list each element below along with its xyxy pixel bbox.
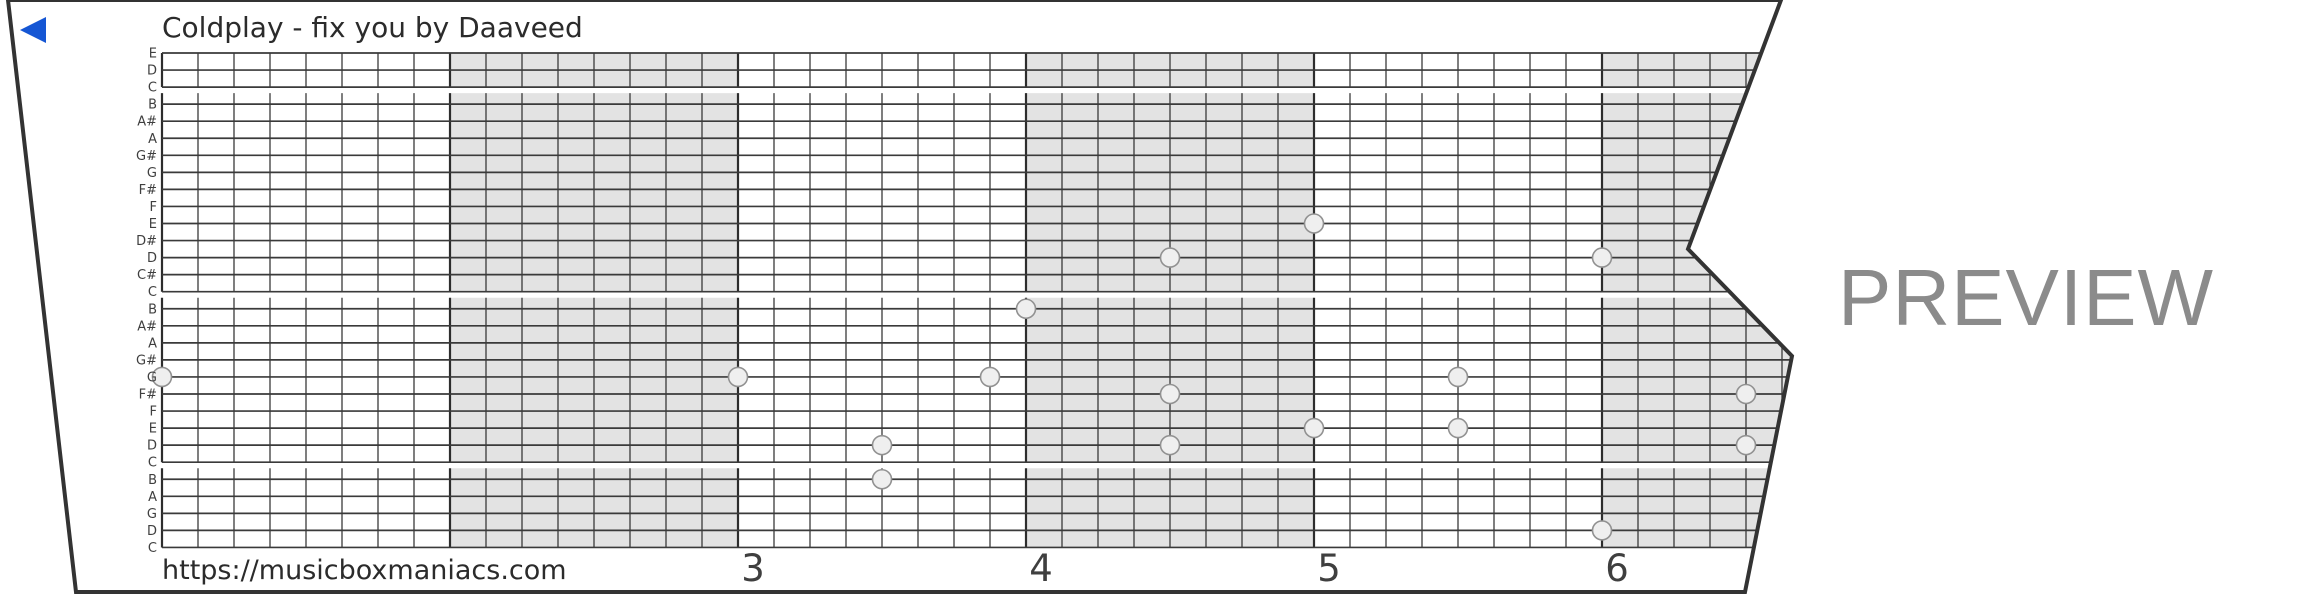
note-dot [873, 436, 892, 455]
note-dot [1161, 248, 1180, 267]
note-label: B [148, 473, 157, 488]
note-label: F# [139, 388, 157, 403]
note-label: F [150, 405, 157, 420]
note-label: A# [137, 115, 157, 130]
note-dot [1449, 367, 1468, 386]
measure-number: 3 [741, 547, 765, 590]
note-label: G [147, 370, 157, 385]
measure-number: 5 [1317, 547, 1341, 590]
site-url: https://musicboxmaniacs.com [162, 556, 567, 586]
strip-body [8, 0, 1792, 592]
note-label: C [148, 541, 157, 556]
page-title: Coldplay - fix you by Daaveed [162, 13, 583, 43]
note-dot [1305, 214, 1324, 233]
note-label: A [148, 132, 157, 147]
note-label: G# [136, 149, 157, 164]
back-triangle-icon[interactable] [20, 17, 46, 43]
note-label: D [147, 64, 157, 79]
note-label: A# [137, 319, 157, 334]
note-label: D [147, 439, 157, 454]
note-dot [729, 367, 748, 386]
note-dot [1161, 436, 1180, 455]
note-dot [1737, 436, 1756, 455]
note-label: B [148, 302, 157, 317]
music-box-preview-page: EDCBA#AG#GF#FED#DC#CBA#AG#GF#FEDCBAGDC34… [0, 0, 2310, 597]
note-dot [1017, 299, 1036, 318]
note-label: D [147, 251, 157, 266]
note-label: E [149, 422, 157, 437]
note-label: C [148, 456, 157, 471]
note-label: B [148, 98, 157, 113]
note-dot [981, 367, 1000, 386]
note-label: C [148, 285, 157, 300]
measure-number: 4 [1029, 547, 1053, 590]
note-label: C# [137, 268, 157, 283]
preview-watermark: PREVIEW [1838, 258, 2214, 338]
note-label: E [149, 47, 157, 62]
note-dot [1305, 419, 1324, 438]
note-dot [1593, 248, 1612, 267]
note-label: G [147, 166, 157, 181]
note-label: G [147, 507, 157, 522]
note-label: F# [139, 183, 157, 198]
note-label: D# [136, 234, 157, 249]
note-dot [873, 470, 892, 489]
note-dot [1593, 521, 1612, 540]
note-label: A [148, 336, 157, 351]
note-label: C [148, 81, 157, 96]
note-dot [1737, 385, 1756, 404]
note-label: D [147, 524, 157, 539]
note-dot [1449, 419, 1468, 438]
note-label: E [149, 217, 157, 232]
note-dot [1161, 385, 1180, 404]
note-label: A [148, 490, 157, 505]
measure-number: 6 [1605, 547, 1629, 590]
note-label: F [150, 200, 157, 215]
note-label: G# [136, 353, 157, 368]
